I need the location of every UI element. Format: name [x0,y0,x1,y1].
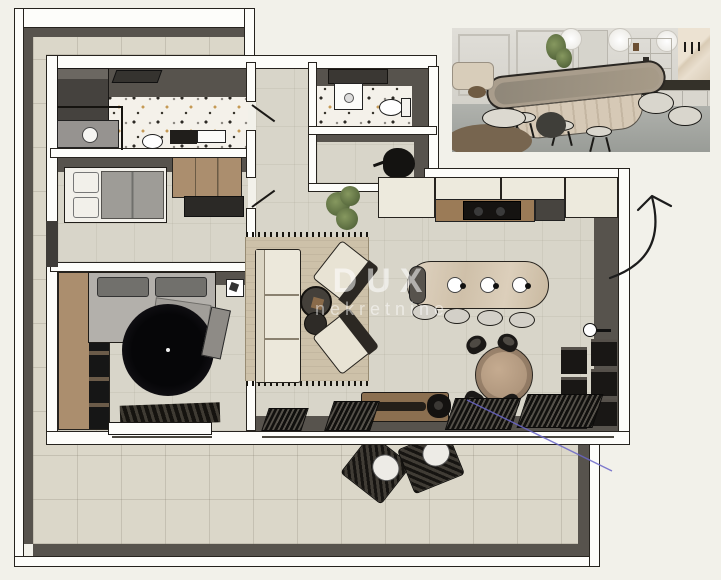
vacuum-cleaner [383,148,415,178]
inset-stool [586,126,612,137]
wc-toilet-tank [401,98,411,117]
bar-stool [477,310,503,326]
cutlery-dot [460,283,466,289]
plant [324,186,364,234]
outer-wall-right [589,443,600,567]
bar-stool [509,312,535,328]
inset-utensil-rail [682,42,706,56]
rug-center-dot [166,348,170,352]
radiator [324,401,380,431]
washing-machine [197,130,226,143]
sink-basin [344,93,354,103]
frame-glyph [229,282,239,292]
toilet-bathroom [142,134,163,149]
place-setting [480,277,496,293]
plant-foliage [336,208,358,230]
utensil [691,42,693,54]
wc-ceiling-panel [328,69,388,84]
chair-seat [468,337,482,350]
window-line-bedroom2 [112,436,212,438]
outer-wall-left [14,8,24,567]
terrace-wall-face-top [24,28,252,37]
shelf-box [561,347,587,374]
pillow [73,172,99,193]
plant-foliage [340,186,360,206]
inset-chair-back [668,106,702,126]
window-line-living [262,436,614,438]
wall-bedroom1-bedroom2 [50,262,252,272]
cutlery-dot [493,283,499,289]
pillow [73,197,99,218]
sofa-back [256,250,265,382]
utensil [684,42,686,52]
living-wall-right [618,168,630,445]
terrace-wall-face-left [24,28,33,544]
kitchen-counter-dark [535,199,565,221]
bar-stool [444,308,470,324]
plant-foliage [556,48,572,68]
inset-foreground-chair-dark [536,112,566,138]
wood-tray [311,297,324,310]
washing-machine-dark [170,130,197,144]
floorplan-image: DUX nekretnine [0,0,721,580]
burner [474,207,483,216]
lamp-top [434,401,443,410]
shelf-dark-bedroom1 [184,196,244,217]
sofa-seam [265,338,299,340]
shelf-box [591,339,617,366]
cutlery-dot [525,283,531,289]
kitchen-cabinet-right [565,177,618,218]
terrace-floor-bottom [33,443,578,544]
sink [82,127,98,143]
sofa [255,249,301,383]
kitchen-cabinet-mid-a [435,177,501,200]
wc-wall-face-right [412,69,428,126]
wall-step-right-of-wc [428,66,439,182]
dining-table [475,346,533,404]
wardrobe-bedroom1 [172,157,242,198]
outer-wall-top-corner [244,8,255,58]
table-lamp-dark [427,394,451,418]
arrow-head [638,196,671,210]
utensil [698,42,700,51]
wc-toilet [379,99,403,116]
shelf-item [633,43,639,51]
radiator [261,408,308,431]
radiator-bedroom2 [108,422,212,435]
storage-wall-face [317,135,428,142]
wall-lamp [583,323,597,337]
inset-side-table [468,86,486,98]
picture-frame-icon [226,279,244,297]
bathroom-vanity [57,120,119,148]
window-bedroom1 [46,221,58,267]
mattress [101,171,164,219]
island-end-cabinet [409,266,426,304]
radiator [516,394,603,428]
bed-single [64,167,167,223]
chair-seat [502,335,516,347]
terrace-floor-top [33,37,252,55]
hall-wall-seg1 [246,62,256,102]
inset-chair-back [638,92,674,114]
radiator [445,398,521,430]
place-setting [512,277,528,293]
bar-stool [412,304,438,320]
place-setting [447,277,463,293]
kitchen-cabinet-mid-b [501,177,565,200]
pillow [155,277,207,297]
pillow [97,277,149,297]
outer-wall-top [14,8,255,28]
lamp-stem [597,329,611,332]
stove [463,201,521,220]
wc-sink [334,83,363,110]
cabinet-top-face [58,69,108,79]
sofa-seam [265,294,299,296]
apartment-wall-top [46,55,437,69]
shelf-box [591,369,617,396]
ceiling-vent [112,70,163,83]
kitchen-cabinet-left [378,177,435,218]
inset-kitchen-render [452,28,710,152]
round-rug [122,304,214,396]
burner [496,207,505,216]
wall-wc-storage [308,126,437,135]
outer-wall-bottom [14,556,599,567]
inset-foreground-chair [482,108,526,128]
hall-wall-seg2 [246,130,256,178]
